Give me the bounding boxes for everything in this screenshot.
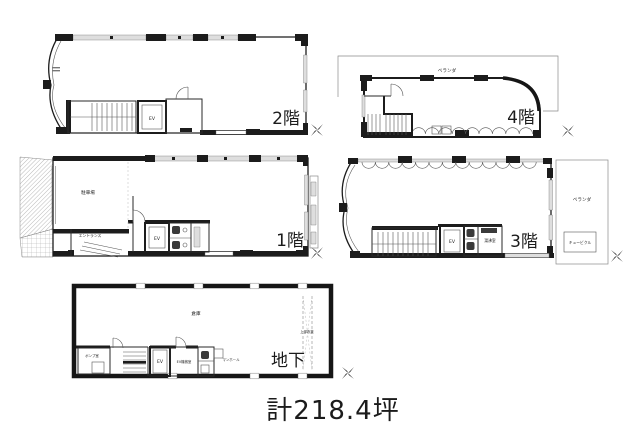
f3-bottom-window-strip xyxy=(505,254,549,258)
f3-stair-treads xyxy=(372,232,436,256)
north-mark-icon xyxy=(311,124,323,136)
f3-kitchenette-label: 湯沸室 xyxy=(484,238,496,243)
b1-void-label: 上部吹抜 xyxy=(300,329,314,334)
floor-1-plan: 駐車場 エントランス EV 1階 xyxy=(20,155,323,259)
f1-outer-wall xyxy=(53,158,308,256)
f3-cubicle-label: キュービクル xyxy=(569,240,592,245)
f2-window-strips xyxy=(73,35,307,112)
f1-entrance-label: エントランス xyxy=(79,233,102,238)
b1-manhole xyxy=(214,349,223,358)
f4-sink-unit-1 xyxy=(432,126,441,134)
f1-door-arc xyxy=(133,210,145,222)
floor-3-label: 3階 xyxy=(510,232,538,252)
f1-elevator-label: EV xyxy=(154,236,161,242)
f3-stair-room xyxy=(372,228,436,256)
floor-2-plan: EV 2階 xyxy=(43,34,323,136)
b1-pump-room-label: ポンプ室 xyxy=(85,353,99,358)
f4-stair-treads xyxy=(368,114,406,135)
b1-pump-room xyxy=(78,348,110,374)
basement-plan: 倉庫 ポンプ室 EV EV機械室 マンホール 上部吹抜 地下 xyxy=(74,283,354,379)
floor-4-label: 4階 xyxy=(507,108,535,128)
f1-entrance-steps xyxy=(80,242,122,257)
f4-sink-unit-2 xyxy=(442,126,451,134)
f1-wall-columns xyxy=(53,155,308,256)
floor-2-label: 2階 xyxy=(272,109,300,129)
f1-sink-2 xyxy=(183,243,187,247)
total-area-caption: 計218.4坪 xyxy=(266,396,399,426)
f2-door-arc xyxy=(176,87,188,99)
f2-wall-columns xyxy=(43,34,308,135)
f1-sink-1 xyxy=(183,228,187,232)
f2-bottom-window-gap xyxy=(216,131,246,135)
north-mark-icon xyxy=(342,367,354,379)
f3-toilet-fixture-1 xyxy=(467,229,475,237)
f1-toilet-fixture-2 xyxy=(172,241,180,249)
b1-ev-machine-room-label: EV機械室 xyxy=(177,359,192,364)
b1-manhole-label: マンホール xyxy=(223,357,241,362)
f4-veranda-label: ベランダ xyxy=(438,67,457,74)
f2-elevator-label: EV xyxy=(149,116,156,122)
f2-outer-wall xyxy=(49,37,306,133)
f3-kitchenette-counter xyxy=(481,228,497,233)
f1-toilet-fixture-1 xyxy=(172,226,180,234)
b1-toilet-fixture xyxy=(201,351,209,359)
b1-warehouse-label: 倉庫 xyxy=(191,310,201,317)
f3-veranda-label: ベランダ xyxy=(573,196,592,203)
f2-service-room xyxy=(166,99,202,133)
north-mark-icon xyxy=(562,125,574,137)
f4-curved-corner-wall xyxy=(503,78,539,111)
floor-3-plan: EV 湯沸室 3階 ベランダ キュービクル xyxy=(339,156,623,264)
f4-door-arc xyxy=(391,84,403,96)
north-mark-icon xyxy=(611,250,623,262)
f4-left-window xyxy=(362,95,365,117)
f3-elevator-label: EV xyxy=(449,239,456,245)
f4-window-scallops xyxy=(412,128,533,134)
f1-driveway-ramp-hatch xyxy=(20,157,53,238)
b1-door-arc-2 xyxy=(176,337,186,347)
f3-toilet-fixture-2 xyxy=(467,242,475,250)
building-floorplan-canvas: EV 2階 ベランダ 4階 駐車場 エントランス xyxy=(0,0,640,430)
f2-stair-treads xyxy=(70,103,136,131)
floor-1-label: 1階 xyxy=(276,231,304,251)
b1-wc-sink xyxy=(201,365,209,373)
basement-label: 地下 xyxy=(271,351,305,371)
b1-pump-equipment xyxy=(92,362,104,373)
north-mark-icon xyxy=(311,247,323,259)
b1-elevator-label: EV xyxy=(157,359,164,365)
f3-curtainwall-inner-line xyxy=(346,165,359,252)
floor-4-plan: ベランダ 4階 xyxy=(338,56,574,137)
f1-parking-label: 駐車場 xyxy=(81,189,95,196)
f2-small-note-text xyxy=(52,67,60,71)
